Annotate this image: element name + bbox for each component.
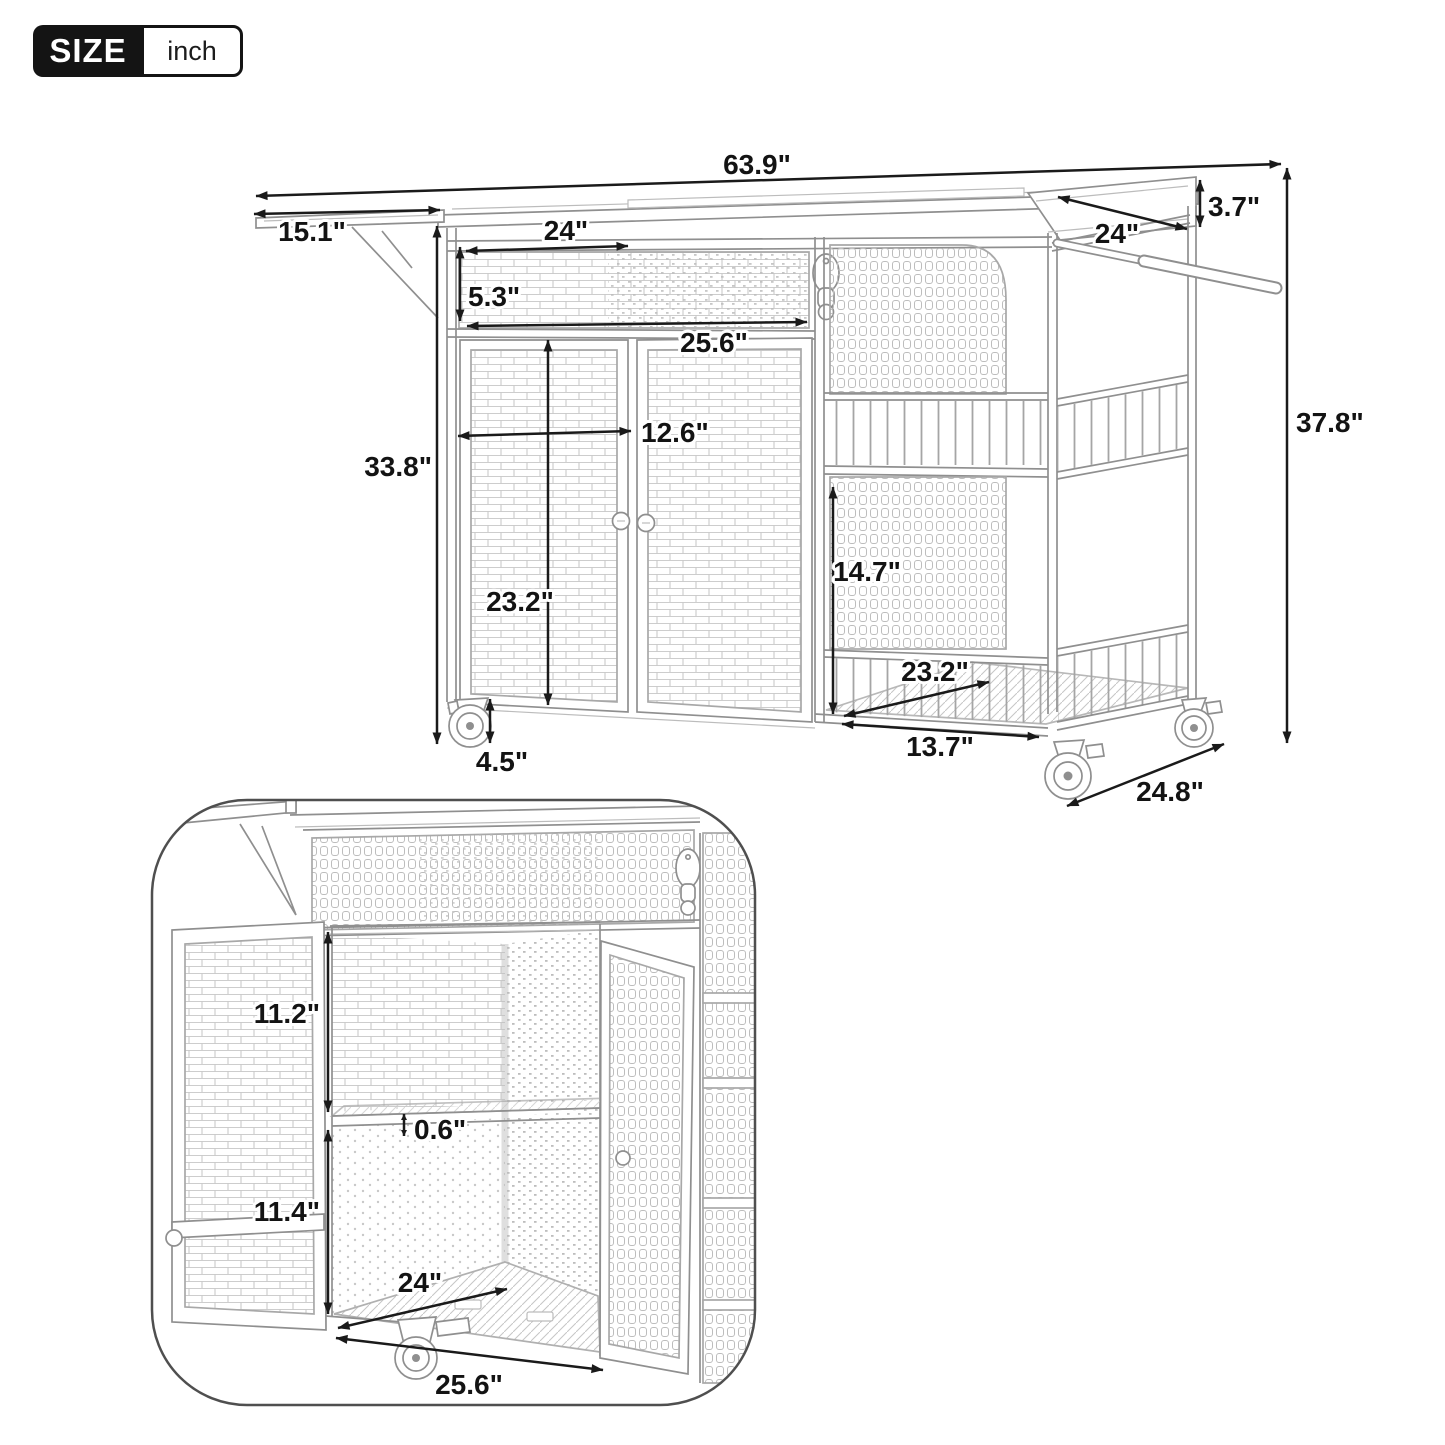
dim-label-door-height: 23.2" [486,586,554,617]
dim-label-tabletop-depth-top: 24" [544,215,588,246]
dim-label-lower-compartment-height: 11.4" [254,1196,320,1227]
interior-wall [505,930,598,1104]
dim-label-interior-width: 25.6" [435,1369,503,1400]
right-side-section [1048,206,1196,730]
dim-label-overall-height: 37.8" [1296,407,1364,438]
shelf-railing [830,401,1044,465]
dim-label-door-width: 12.6" [641,417,709,448]
dim-label-right-leaf-depth: 24" [1095,218,1139,249]
dim-label-apron-height: 5.3" [468,281,520,312]
wine-rack-strip [700,833,755,1383]
dim-label-caster-height: 4.5" [476,746,528,777]
dim-label-shelf-thickness: 0.6" [414,1114,466,1145]
left-drop-leaf [152,793,296,915]
dim-label-overall-width: 63.9" [723,149,791,180]
interior-wall [332,934,505,1112]
cabinet-interior [326,922,612,1356]
handle-bar [1057,243,1276,288]
side-shelf-railing [1058,383,1187,471]
size-badge: SIZE inch [33,25,243,77]
left-door-open [166,922,326,1330]
caster-wheel [1045,740,1104,799]
dim-label-open-shelf-height: 14.7" [833,556,901,587]
door-knob [616,1151,630,1165]
diagram-canvas: 63.9" 15.1" 24" 5.3" 25.6" 33.8" 12.6" 2… [0,0,1445,1445]
size-label: SIZE [33,25,143,77]
dim-label-countertop-thickness: 3.7" [1208,191,1260,222]
dim-label-interior-depth: 24" [398,1267,442,1298]
right-door [637,338,812,722]
dim-label-cabinet-width: 25.6" [680,327,748,358]
wicker-panel [830,245,1006,394]
right-door-open [600,941,694,1374]
unit-label: inch [141,25,243,77]
dim-label-overall-depth: 24.8" [1136,776,1204,807]
main-view [256,177,1276,799]
leaf-support-brace [352,227,438,318]
leaf-support-brace [240,824,296,915]
caster-wheel [448,698,491,747]
left-door [460,340,628,712]
dim-label-cabinet-height: 33.8" [364,451,432,482]
inset-view [152,793,755,1383]
door-knob [166,1230,182,1246]
dim-label-base-shelf-width: 13.7" [906,731,974,762]
dim-label-base-shelf-depth: 23.2" [901,656,969,687]
dimension-diagram: SIZE inch [0,0,1445,1445]
door-knobs [613,513,655,532]
dim-label-drop-leaf-width: 15.1" [278,216,346,247]
dim-label-upper-compartment-height: 11.2" [254,998,320,1029]
